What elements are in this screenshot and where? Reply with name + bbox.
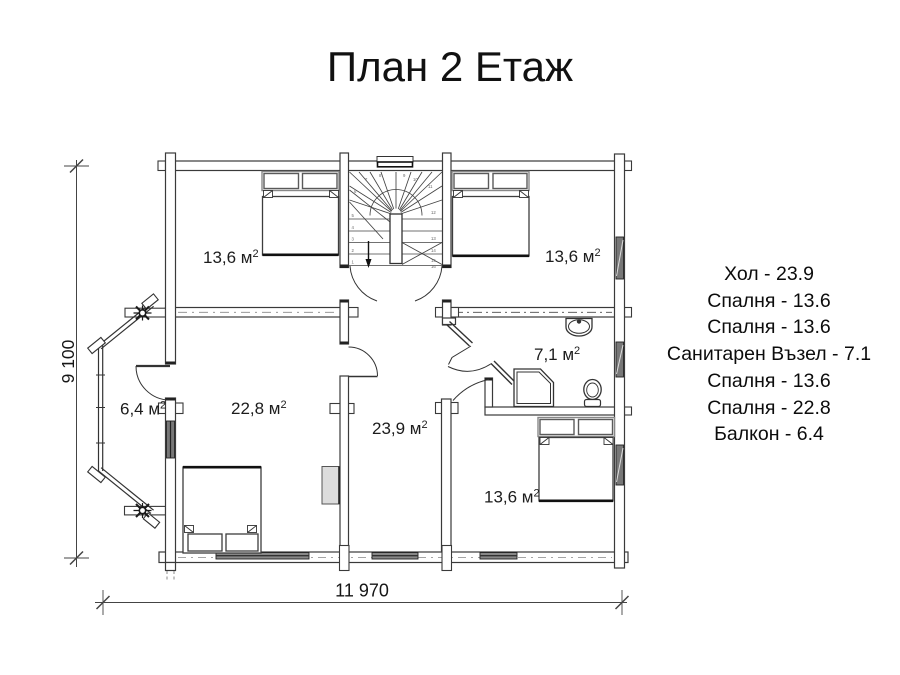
svg-text:12: 12: [431, 210, 436, 215]
svg-text:23,9 м2: 23,9 м2: [372, 419, 428, 438]
svg-text:9: 9: [403, 173, 406, 178]
svg-text:13,6 м2: 13,6 м2: [484, 488, 540, 507]
svg-text:13,6 м2: 13,6 м2: [545, 247, 601, 266]
svg-text:13,6 м2: 13,6 м2: [203, 248, 259, 267]
svg-text:16: 16: [431, 264, 436, 269]
svg-text:10: 10: [413, 177, 418, 182]
svg-text:5: 5: [352, 213, 355, 218]
svg-text:11: 11: [428, 184, 433, 189]
svg-text:2: 2: [352, 248, 355, 253]
svg-text:1: 1: [352, 260, 355, 265]
svg-text:15: 15: [431, 258, 436, 263]
svg-text:6: 6: [354, 189, 357, 194]
svg-text:4: 4: [352, 225, 355, 230]
svg-text:13: 13: [431, 236, 436, 241]
svg-text:3: 3: [352, 237, 355, 242]
svg-text:9 100: 9 100: [58, 339, 78, 383]
svg-text:22,8 м2: 22,8 м2: [231, 399, 287, 418]
svg-text:7: 7: [365, 177, 368, 182]
svg-text:14: 14: [431, 248, 436, 253]
svg-text:7,1 м2: 7,1 м2: [534, 345, 580, 364]
svg-text:6,4 м2: 6,4 м2: [120, 400, 166, 419]
svg-text:11 970: 11 970: [335, 581, 389, 601]
